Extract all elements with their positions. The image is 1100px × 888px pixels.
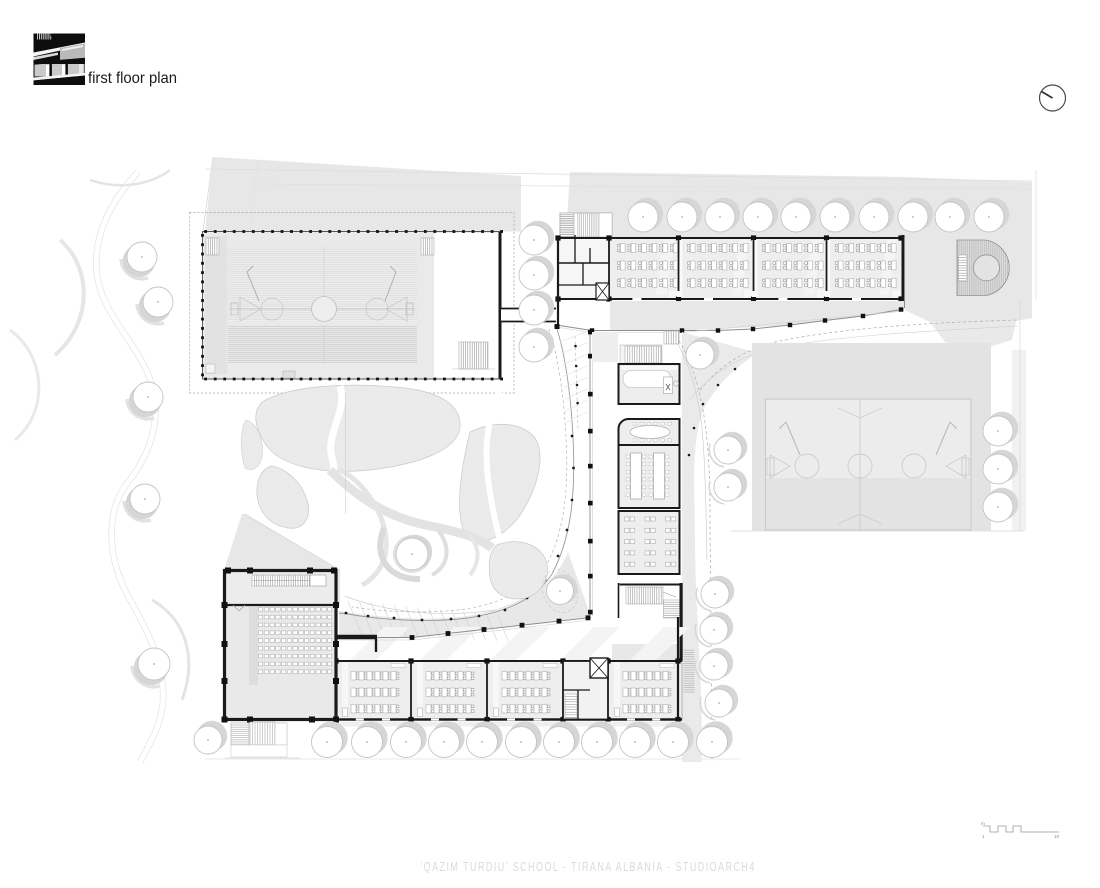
svg-text:1: 1 (982, 834, 985, 839)
svg-text:‘QAZIM TURDIU’ SCHOOL - TIRAN: ‘QAZIM TURDIU’ SCHOOL - TIRANA ALBANIA -… (420, 861, 756, 875)
svg-text:m: m (981, 821, 985, 826)
svg-text:first floor plan: first floor plan (88, 70, 177, 87)
svg-text:10: 10 (1054, 834, 1060, 839)
